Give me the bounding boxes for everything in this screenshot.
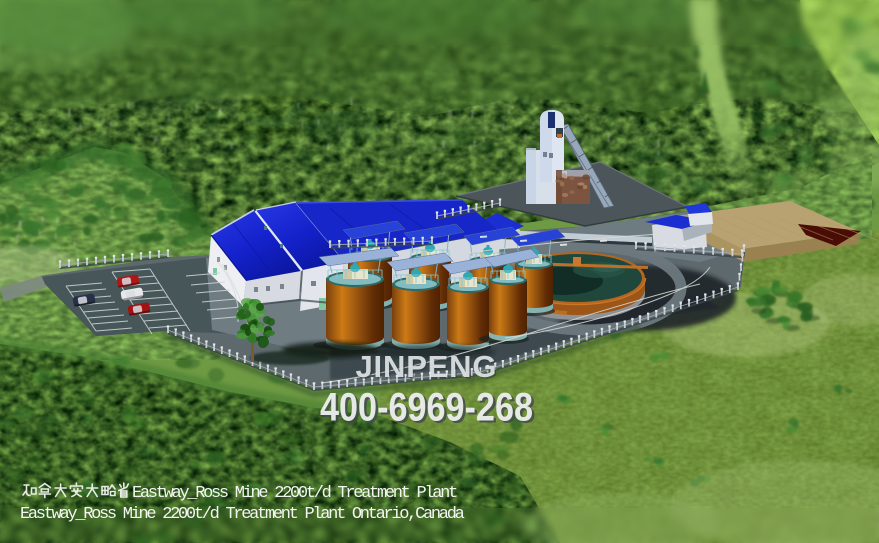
svg-text:JINPENG: JINPENG xyxy=(356,349,499,384)
svg-text:400-6969-268: 400-6969-268 xyxy=(320,386,533,430)
svg-text:Eastway_Ross Mine 2200t/d Trea: Eastway_Ross Mine 2200t/d Treatment Plan… xyxy=(132,484,457,503)
svg-text:Eastway_Ross Mine 2200t/d Trea: Eastway_Ross Mine 2200t/d Treatment Plan… xyxy=(20,505,465,524)
